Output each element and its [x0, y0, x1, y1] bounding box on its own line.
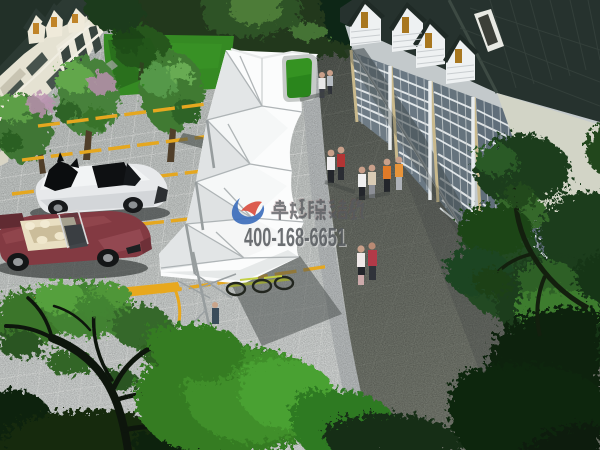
- svg-text:400-168-6651: 400-168-6651: [244, 222, 346, 252]
